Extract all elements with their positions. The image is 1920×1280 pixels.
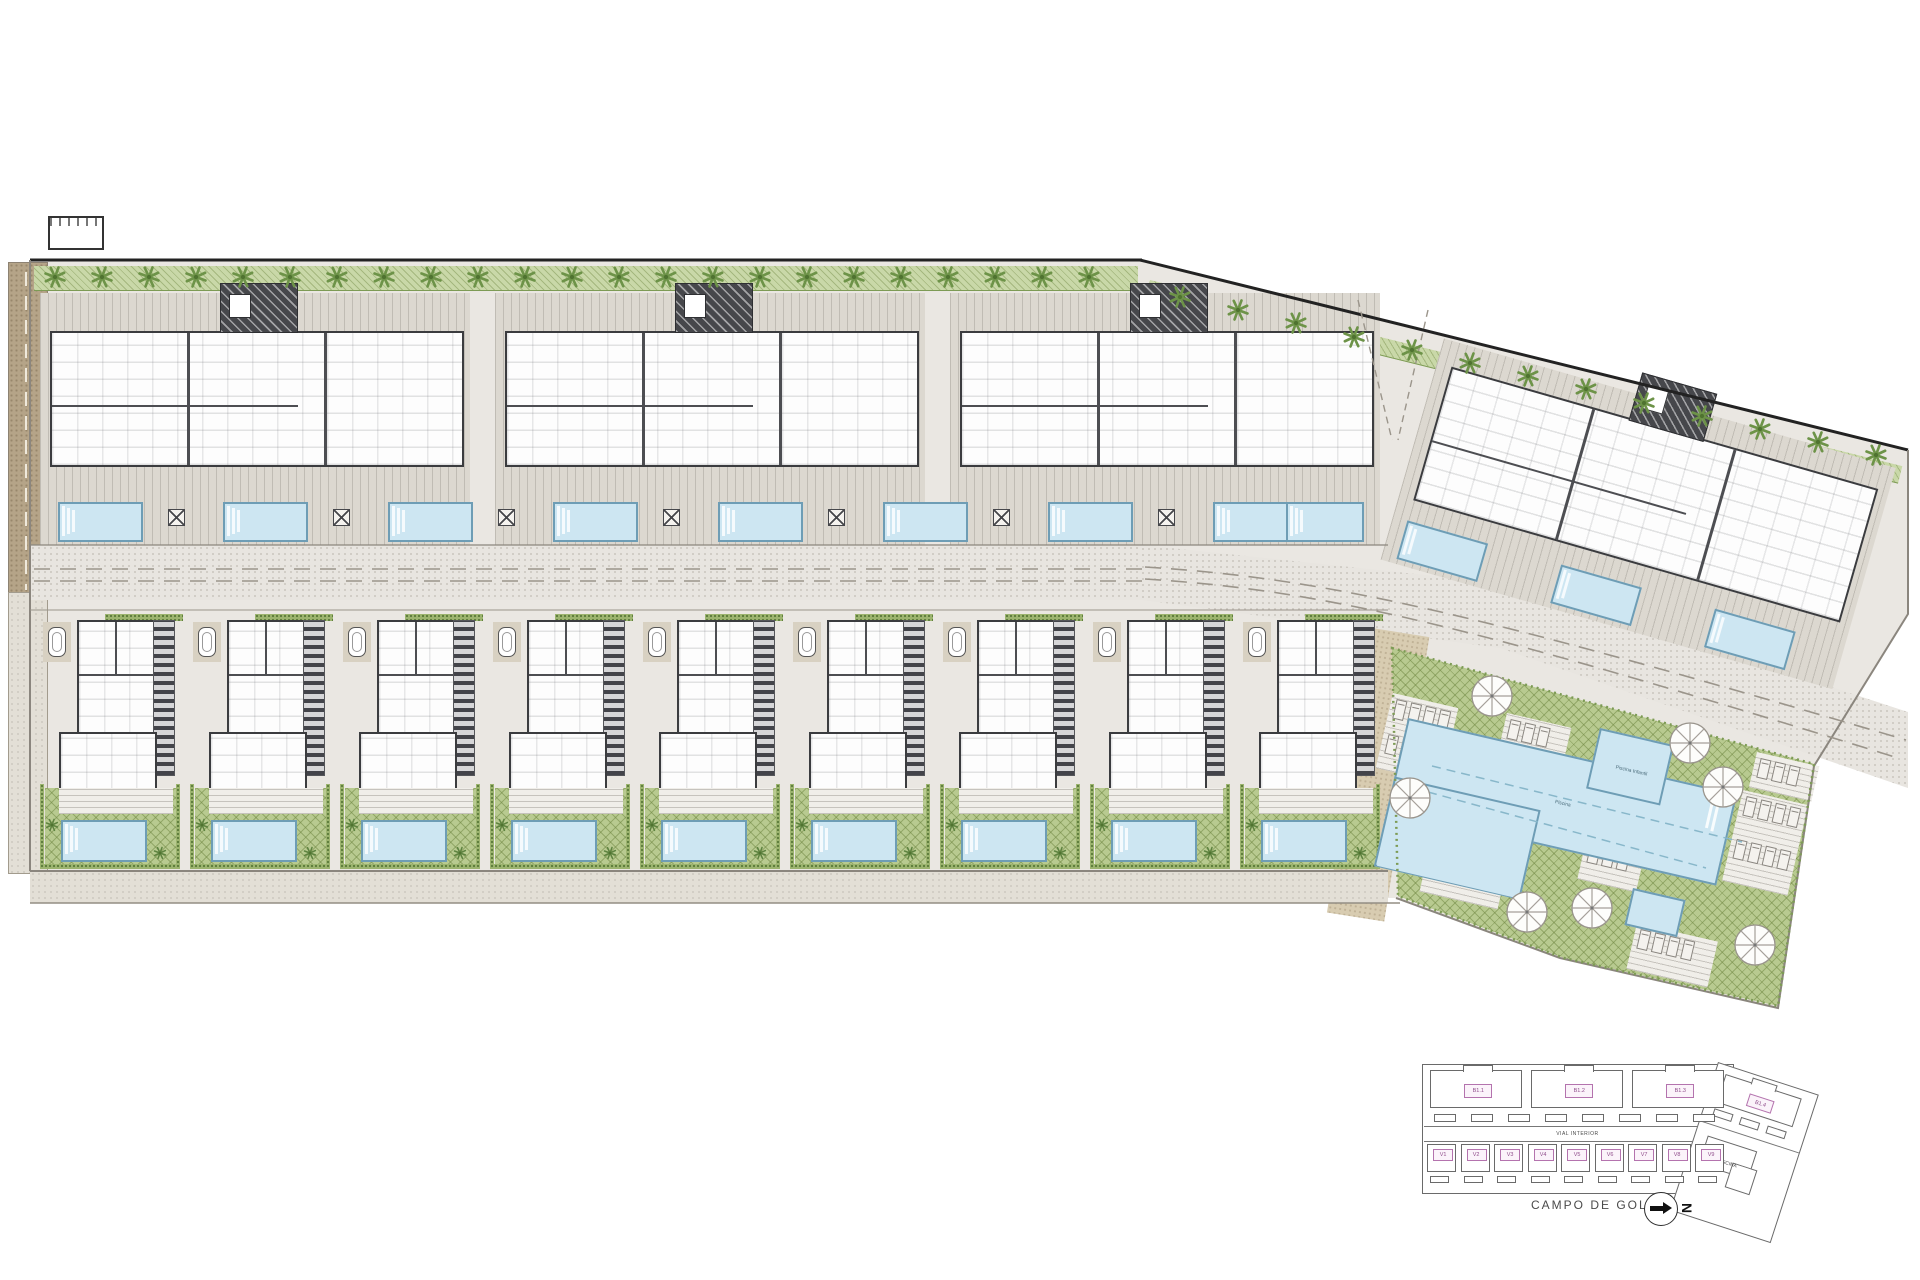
parasol-icon xyxy=(1571,887,1613,929)
key-plan-villa-label: V3 xyxy=(1500,1149,1520,1161)
palm-tree-icon xyxy=(748,265,772,289)
palm-tree-icon xyxy=(1030,265,1054,289)
north-arrow xyxy=(1644,1192,1678,1226)
palm-tree-icon xyxy=(325,265,349,289)
palm-tree-icon xyxy=(607,265,631,289)
key-plan-villa-label: V8 xyxy=(1668,1149,1688,1161)
palm-tree-icon xyxy=(1284,311,1308,335)
key-plan-road-band: VIAL INTERIOR xyxy=(1424,1126,1730,1142)
key-plan-pool-rect xyxy=(1545,1114,1567,1122)
palm-tree-icon xyxy=(1574,377,1598,401)
palm-tree-icon xyxy=(1632,391,1656,415)
palm-tree-icon xyxy=(889,265,913,289)
key-plan-pool-rect xyxy=(1497,1176,1516,1183)
key-plan-pool-rect xyxy=(1471,1114,1493,1122)
palm-tree-icon xyxy=(701,265,725,289)
palm-tree-icon xyxy=(466,265,490,289)
key-plan-villa-label: V4 xyxy=(1534,1149,1554,1161)
key-plan-pool-rect xyxy=(1464,1176,1483,1183)
key-plan-pool-rect xyxy=(1698,1176,1717,1183)
key-plan-villa-shape: V7 xyxy=(1628,1144,1657,1172)
palm-tree-icon xyxy=(278,265,302,289)
key-plan-villa-label: V1 xyxy=(1433,1149,1453,1161)
palm-tree-icon xyxy=(372,265,396,289)
palm-tree-icon xyxy=(1516,364,1540,388)
parasol-icon xyxy=(1702,766,1744,808)
key-plan-pool-rect xyxy=(1665,1176,1684,1183)
north-letter: N xyxy=(1679,1203,1695,1213)
palm-tree-icon xyxy=(43,265,67,289)
key-plan-villa-shape: V3 xyxy=(1494,1144,1523,1172)
parasol-icon xyxy=(1734,924,1776,966)
palm-tree-icon xyxy=(1748,417,1772,441)
key-plan-villa-label: V5 xyxy=(1567,1149,1587,1161)
palm-tree-icon xyxy=(654,265,678,289)
palm-tree-icon xyxy=(1806,430,1830,454)
key-plan-building-shape: B1.2 xyxy=(1531,1070,1623,1108)
key-plan-pool-rect xyxy=(1693,1114,1715,1122)
palm-tree-icon xyxy=(231,265,255,289)
palm-tree-icon xyxy=(1226,298,1250,322)
key-plan-pool-rect xyxy=(1434,1114,1456,1122)
parasol-icon xyxy=(1669,722,1711,764)
palm-tree-icon xyxy=(1168,285,1192,309)
key-plan-pool-rect xyxy=(1656,1114,1678,1122)
key-plan-villa-shape: V9 xyxy=(1695,1144,1724,1172)
palm-tree-icon xyxy=(1077,265,1101,289)
key-plan-villa-label: V9 xyxy=(1701,1149,1721,1161)
key-plan-villa-label: V6 xyxy=(1601,1149,1621,1161)
palm-tree-icon xyxy=(560,265,584,289)
key-plan-pool-rect xyxy=(1564,1176,1583,1183)
palm-tree-icon xyxy=(795,265,819,289)
key-plan-villa-label: V2 xyxy=(1467,1149,1487,1161)
key-plan-building-shape: B1.1 xyxy=(1430,1070,1522,1108)
parasol-icon xyxy=(1506,891,1548,933)
palm-tree-icon xyxy=(936,265,960,289)
key-plan-villa-shape: V1 xyxy=(1427,1144,1456,1172)
key-plan-building4-label: B1.4 xyxy=(1746,1093,1775,1113)
key-plan-pool-rect xyxy=(1619,1114,1641,1122)
key-plan-pool-rect xyxy=(1582,1114,1604,1122)
key-plan-pool-rect xyxy=(1508,1114,1530,1122)
key-plan-road-label: VIAL INTERIOR xyxy=(1556,1131,1598,1137)
palm-tree-icon xyxy=(983,265,1007,289)
palm-tree-icon xyxy=(137,265,161,289)
key-plan-villa-label: V7 xyxy=(1634,1149,1654,1161)
key-plan-building-label: B1.3 xyxy=(1666,1084,1694,1098)
key-plan-villa-shape: V6 xyxy=(1595,1144,1624,1172)
palm-tree-icon xyxy=(1342,325,1366,349)
palm-tree-icon xyxy=(1400,338,1424,362)
parasol-icon xyxy=(1471,675,1513,717)
palm-tree-icon xyxy=(184,265,208,289)
palm-tree-icon xyxy=(513,265,537,289)
key-plan-villa-shape: V4 xyxy=(1528,1144,1557,1172)
palm-tree-icon xyxy=(1690,404,1714,428)
palm-tree-icon xyxy=(90,265,114,289)
key-plan-pool-rect xyxy=(1430,1176,1449,1183)
palm-tree-icon xyxy=(842,265,866,289)
key-plan-villa-shape: V2 xyxy=(1461,1144,1490,1172)
key-plan-building-label: B1.1 xyxy=(1464,1084,1492,1098)
parasol-icon xyxy=(1389,777,1431,819)
palm-tree-icon xyxy=(419,265,443,289)
key-plan-pool-rect xyxy=(1531,1176,1550,1183)
key-plan-building-label: B1.2 xyxy=(1565,1084,1593,1098)
key-plan-villa-shape: V8 xyxy=(1662,1144,1691,1172)
key-plan: VIAL INTERIOR CAMPO DE GOLF B1.4 PISCINA xyxy=(1422,1062,1802,1238)
key-plan-pool-rect xyxy=(1598,1176,1617,1183)
site-plan-canvas: Piscina Piscina Infantil VIAL INTERIOR C… xyxy=(0,0,1920,1280)
key-plan-building-shape: B1.3 xyxy=(1632,1070,1724,1108)
palm-tree-icon xyxy=(1458,351,1482,375)
key-plan-villa-shape: V5 xyxy=(1561,1144,1590,1172)
key-plan-pool-rect xyxy=(1631,1176,1650,1183)
palm-tree-icon xyxy=(1864,443,1888,467)
